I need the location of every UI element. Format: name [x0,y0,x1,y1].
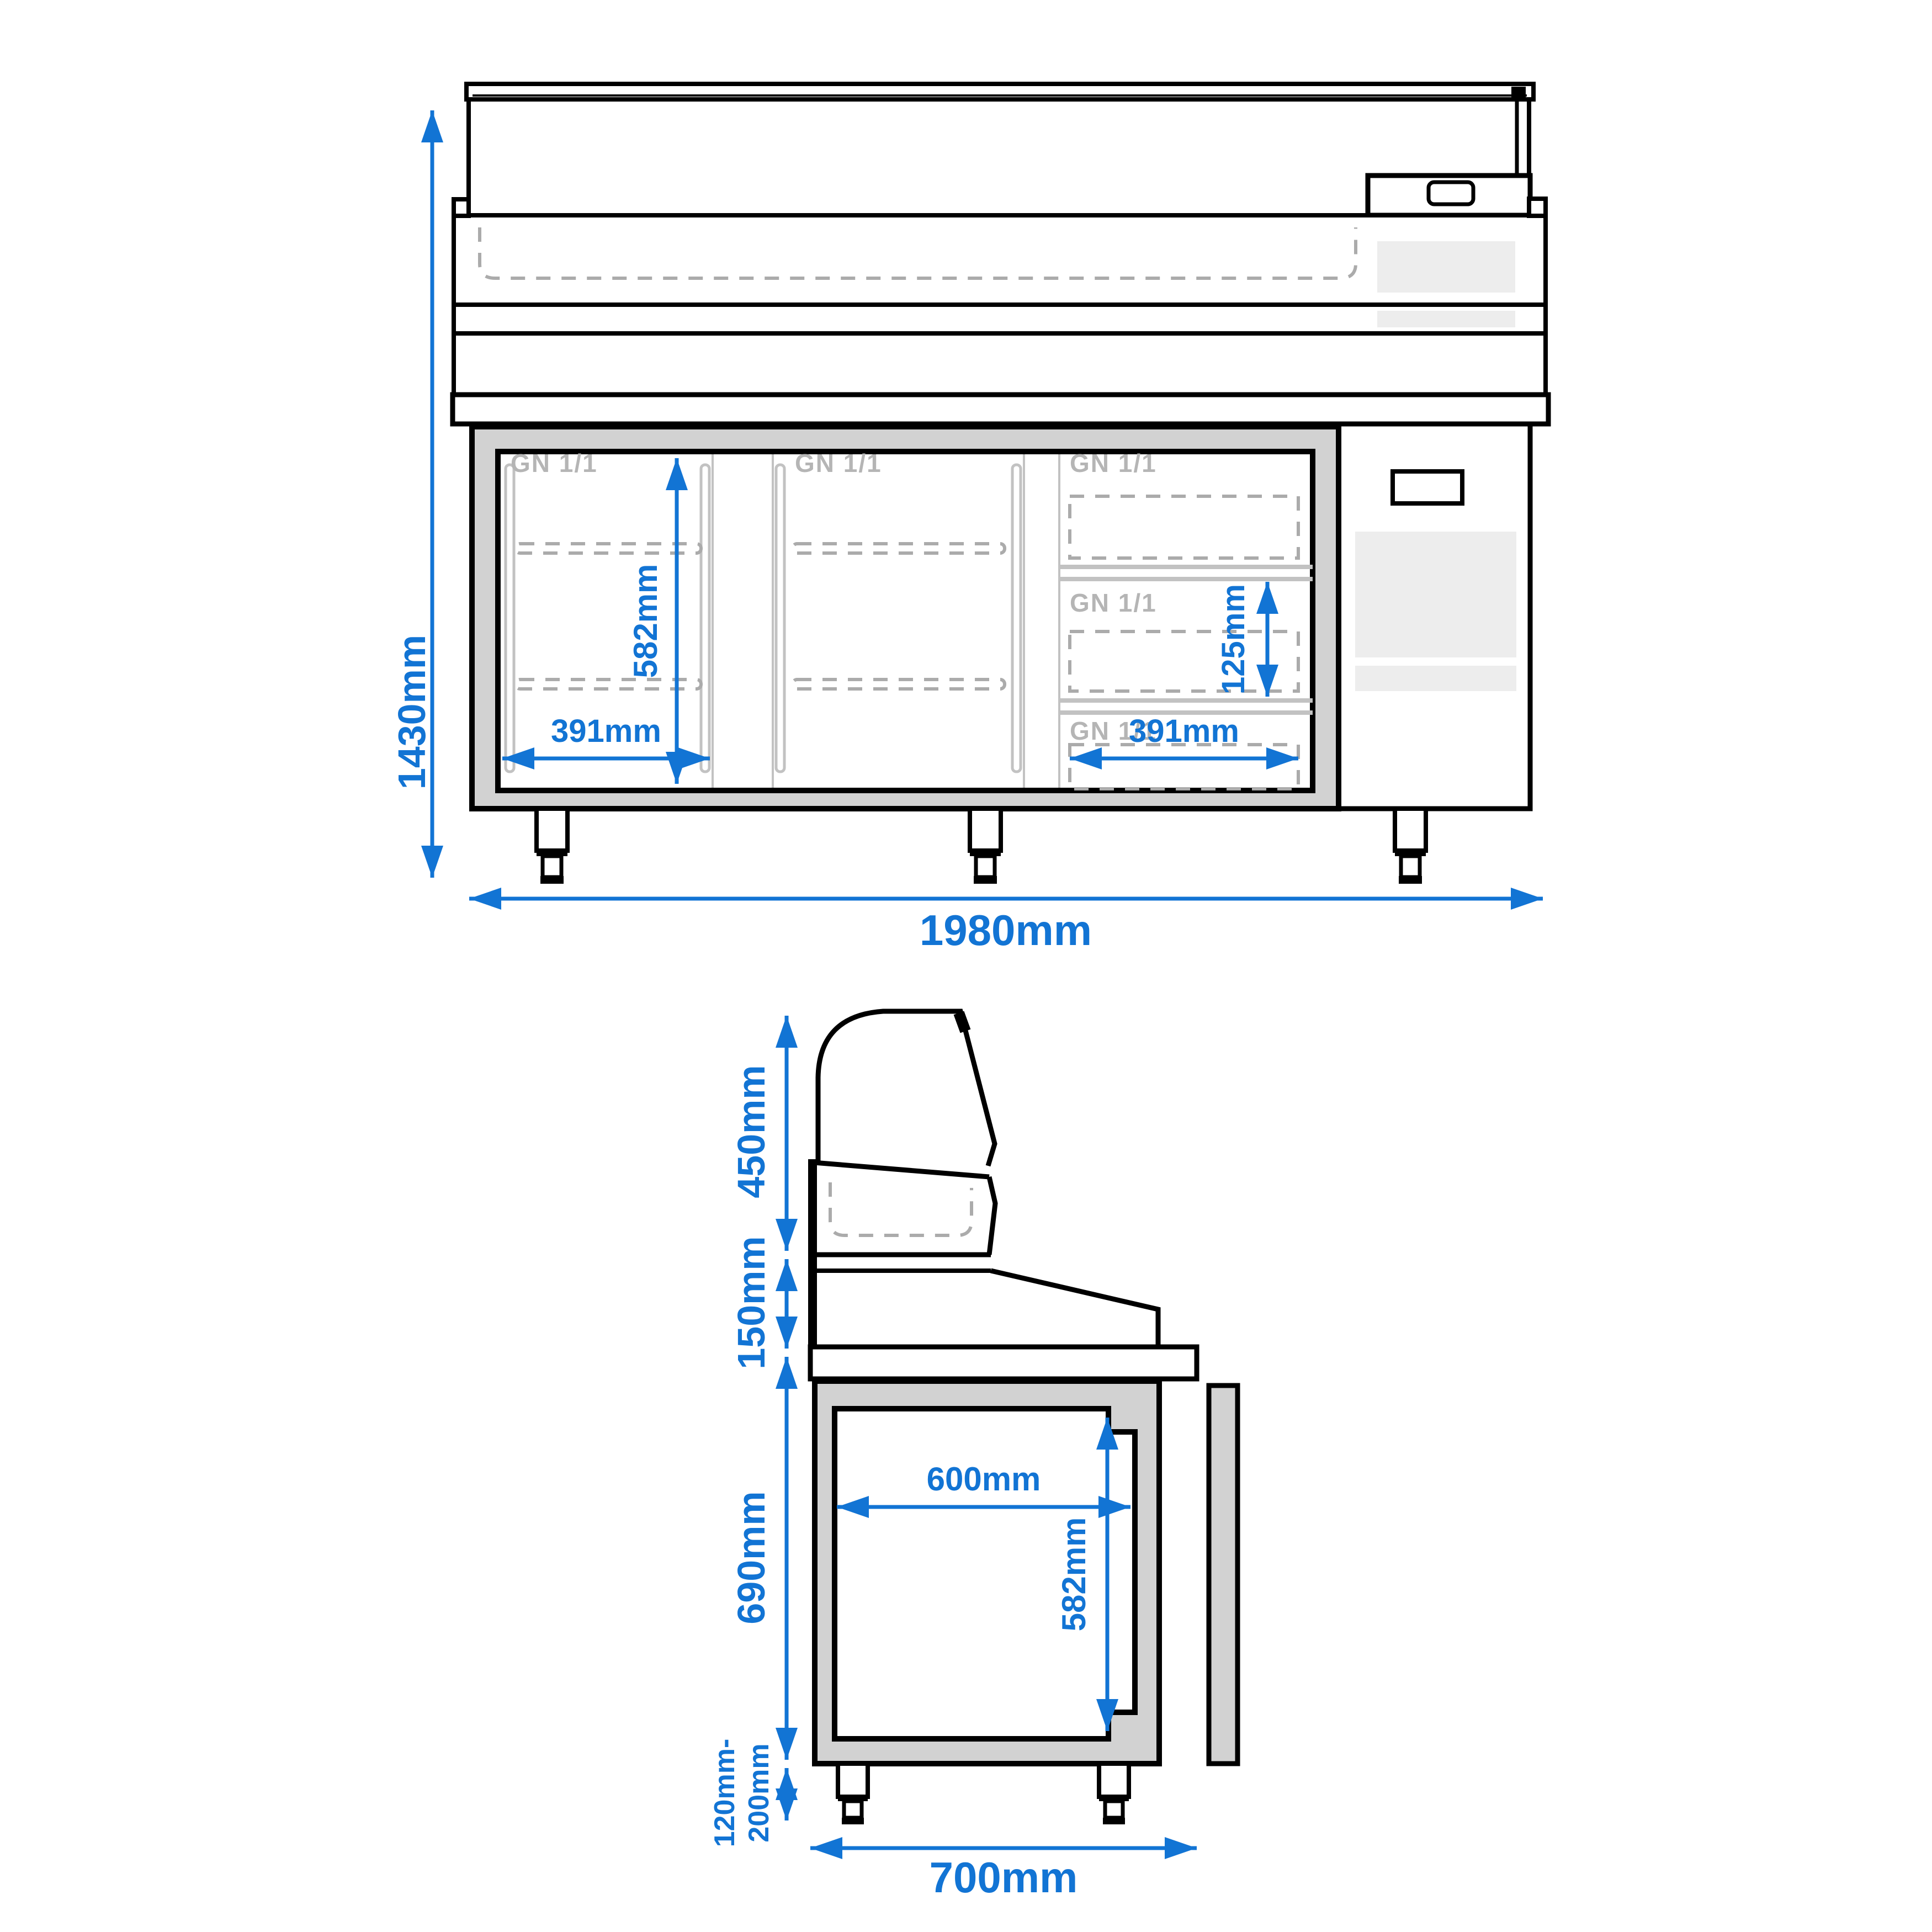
leg-2 [970,809,1001,884]
front-view: GN 1/1 GN 1/1 GN 1/1 GN 1/1 GN 1/1 [390,84,1548,954]
door-panel [1209,1386,1238,1764]
inner-depth-label: 600mm [927,1461,1041,1498]
base-left-step [454,199,469,216]
side-inner-height-label: 582mm [1055,1517,1092,1632]
leg-3 [1395,809,1426,884]
glass-hood-outline [818,1011,995,1166]
side-leg-rear [1099,1764,1129,1824]
vent-grille-large [1355,532,1516,657]
display-well-right [989,1177,995,1255]
base-right-step [1529,199,1546,216]
gn-label-comp1: GN 1/1 [511,449,598,477]
foot-height-label-line2: 200mm [743,1743,775,1842]
inner-height-label: 582mm [627,564,664,678]
shelf-rail-4 [1012,465,1021,772]
glass-hood-tip [959,1013,965,1031]
vent-insert-upper [1377,241,1515,293]
shelf-rail-1 [506,465,514,772]
shelf-rail-3 [776,465,784,772]
side-glass-hood [813,1011,995,1349]
cabinet: GN 1/1 GN 1/1 GN 1/1 GN 1/1 GN 1/1 [472,427,1339,809]
drawer-height-label: 125mm [1216,584,1251,694]
vent-grille-small [1355,666,1516,691]
side-view: 450mm 150mm 690mm 120mm- 200mm 582mm 600… [709,1011,1238,1902]
case-base [454,199,1546,395]
overall-width-label: 1980mm [920,906,1092,954]
comp1-width-label: 391mm [551,713,661,749]
gn-label-comp2: GN 1/1 [795,449,882,477]
drawer-width-label: 391mm [1129,713,1239,749]
body-height-label: 690mm [730,1491,773,1624]
foot-height-label-line1: 120mm- [709,1739,741,1848]
worktop-front [453,395,1548,424]
machine-compartment [1339,424,1530,809]
shelf-rail-2 [701,465,709,772]
gn-label-drawer2: GN 1/1 [1070,588,1157,617]
side-worktop-band [810,1255,1197,1379]
overall-depth-label: 700mm [930,1853,1078,1902]
side-cabinet [815,1381,1238,1764]
side-leg-front [838,1764,868,1824]
gn-label-drawer1: GN 1/1 [1070,449,1157,477]
worktop-band-label: 150mm [730,1236,773,1369]
temperature-display [1393,471,1462,503]
leg-1 [537,809,567,884]
vent-insert-strip [1377,311,1515,327]
display-case [466,84,1533,215]
worktop-slope [991,1271,1158,1347]
worktop-slab [810,1347,1197,1379]
canopy [466,84,1533,99]
front-legs [537,809,1426,884]
side-legs [838,1764,1129,1824]
overall-height-label: 1430mm [390,635,433,789]
display-screen [1429,182,1473,204]
display-height-label: 450mm [730,1065,773,1198]
dimension-drawing: GN 1/1 GN 1/1 GN 1/1 GN 1/1 GN 1/1 [0,0,1932,1932]
pan-dashed-outline [830,1182,972,1235]
